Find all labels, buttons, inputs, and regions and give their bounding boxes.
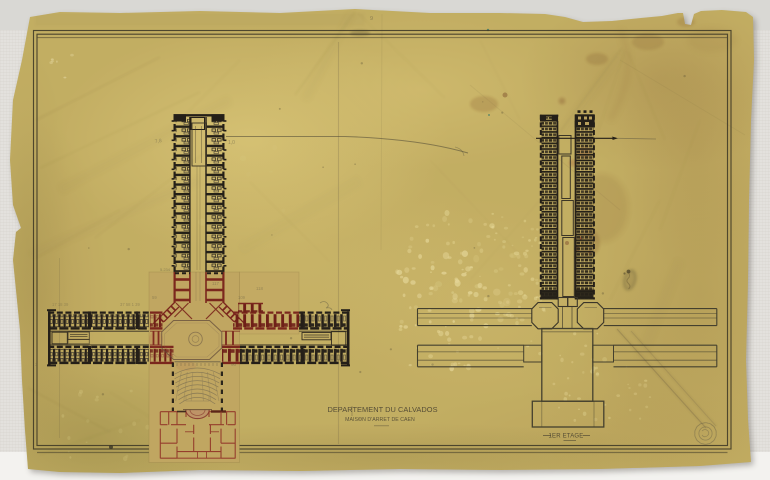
svg-text:MAISON D'ARRET DE CAEN: MAISON D'ARRET DE CAEN xyxy=(345,417,415,423)
svg-text:1,0: 1,0 xyxy=(228,140,235,146)
svg-text:118: 118 xyxy=(256,286,264,291)
svg-text:1ER ETAGE: 1ER ETAGE xyxy=(548,434,583,440)
svg-text:7,8: 7,8 xyxy=(154,138,162,145)
svg-text:5.234: 5.234 xyxy=(160,267,171,272)
svg-text:17 18 39: 17 18 39 xyxy=(52,302,69,307)
svg-text:109: 109 xyxy=(238,295,246,300)
svg-text:DEPARTEMENT DU CALVADOS: DEPARTEMENT DU CALVADOS xyxy=(327,405,437,414)
svg-text:9: 9 xyxy=(370,16,373,22)
svg-text:117: 117 xyxy=(212,281,220,286)
svg-text:37 58 1 39: 37 58 1 39 xyxy=(120,302,140,307)
svg-text:90: 90 xyxy=(231,362,237,367)
svg-text:59: 59 xyxy=(152,295,157,300)
